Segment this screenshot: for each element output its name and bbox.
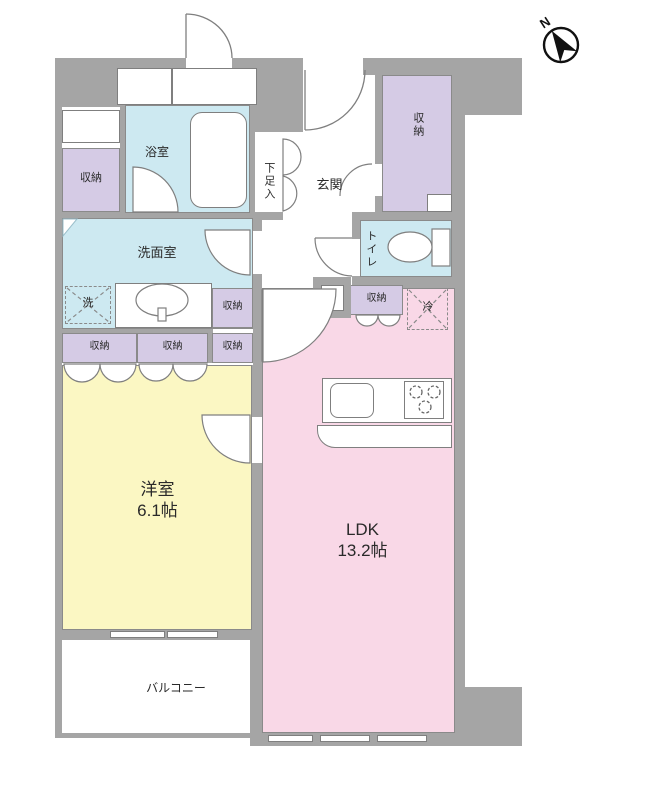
door-arc-front [305, 70, 365, 130]
door-bifold-shoe-cabinet [283, 139, 301, 211]
vanity-basin [136, 284, 188, 321]
floor-plan: N 洋室6.1帖 LDK13.2帖 バルコニー 浴室 洗面室 玄関 下足入 トイ… [0, 0, 659, 796]
storage-label: 収納 [62, 338, 137, 356]
entrance-label: 玄関 [302, 175, 357, 195]
western-room-label: 洋室6.1帖 [95, 475, 220, 525]
washer-label: 洗 [74, 295, 102, 313]
door-bifold-kitchen-closet [356, 315, 400, 326]
washroom-label: 洗面室 [112, 243, 202, 263]
fridge-label: 冷 [414, 299, 442, 317]
storage-label: 収納 [350, 290, 403, 308]
door-arc-western-room [202, 415, 250, 463]
balcony-label: バルコニー [120, 678, 232, 698]
ldk-label: LDK13.2帖 [300, 515, 425, 565]
toilet-fixture [388, 229, 450, 266]
door-bifold-bedroom-closets [64, 364, 207, 382]
compass-north: N [537, 14, 578, 62]
door-arc-ldk [263, 289, 336, 362]
storage-label: 収納 [212, 338, 253, 356]
storage-label: 収納 [212, 298, 253, 316]
floorplan-overlay: N [0, 0, 659, 796]
door-arc-toilet [315, 238, 352, 276]
toilet-label: トイレ [361, 222, 379, 276]
bathroom-label: 浴室 [128, 142, 186, 162]
north-label: N [537, 14, 553, 32]
stove-burners [410, 386, 440, 413]
storage-label: 収納 [408, 95, 426, 155]
door-arc-outer-entry [186, 14, 232, 58]
washroom-corner-notch [63, 219, 77, 236]
door-arc-bathroom [133, 167, 178, 212]
storage-label: 収納 [137, 338, 208, 356]
shoe-cabinet-label: 下足入 [258, 145, 278, 217]
storage-label: 収納 [64, 170, 118, 188]
door-arc-washroom [205, 230, 250, 275]
